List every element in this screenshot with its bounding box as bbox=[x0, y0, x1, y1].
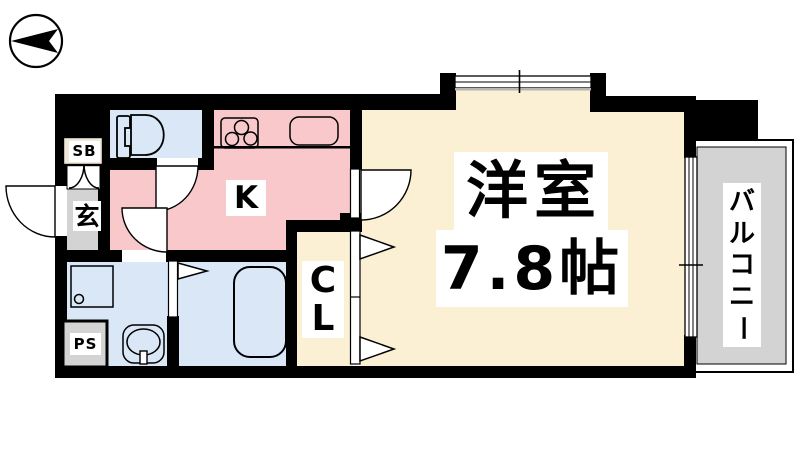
shoebox-doors bbox=[67, 163, 100, 189]
entry-door-arc bbox=[6, 186, 55, 237]
floor-plan-drawing bbox=[0, 0, 800, 450]
pipe-space-label: PS bbox=[70, 333, 101, 355]
entrance-label: 玄 bbox=[73, 201, 101, 231]
compass-icon bbox=[10, 15, 62, 67]
shoebox-label: SB bbox=[69, 141, 100, 162]
floor-plan: SB 玄 K C L 洋室 7.8帖 PS バ ル コ ニ ー bbox=[0, 0, 800, 450]
main-room-name-label: 洋室 bbox=[454, 152, 608, 230]
balcony-label: バ ル コ ニ ー bbox=[723, 183, 761, 347]
toilet-icon bbox=[117, 115, 164, 158]
kitchen-label: K bbox=[226, 180, 266, 216]
closet-label: C L bbox=[302, 261, 344, 338]
top-window bbox=[455, 70, 591, 93]
main-room-size-label: 7.8帖 bbox=[436, 230, 628, 307]
